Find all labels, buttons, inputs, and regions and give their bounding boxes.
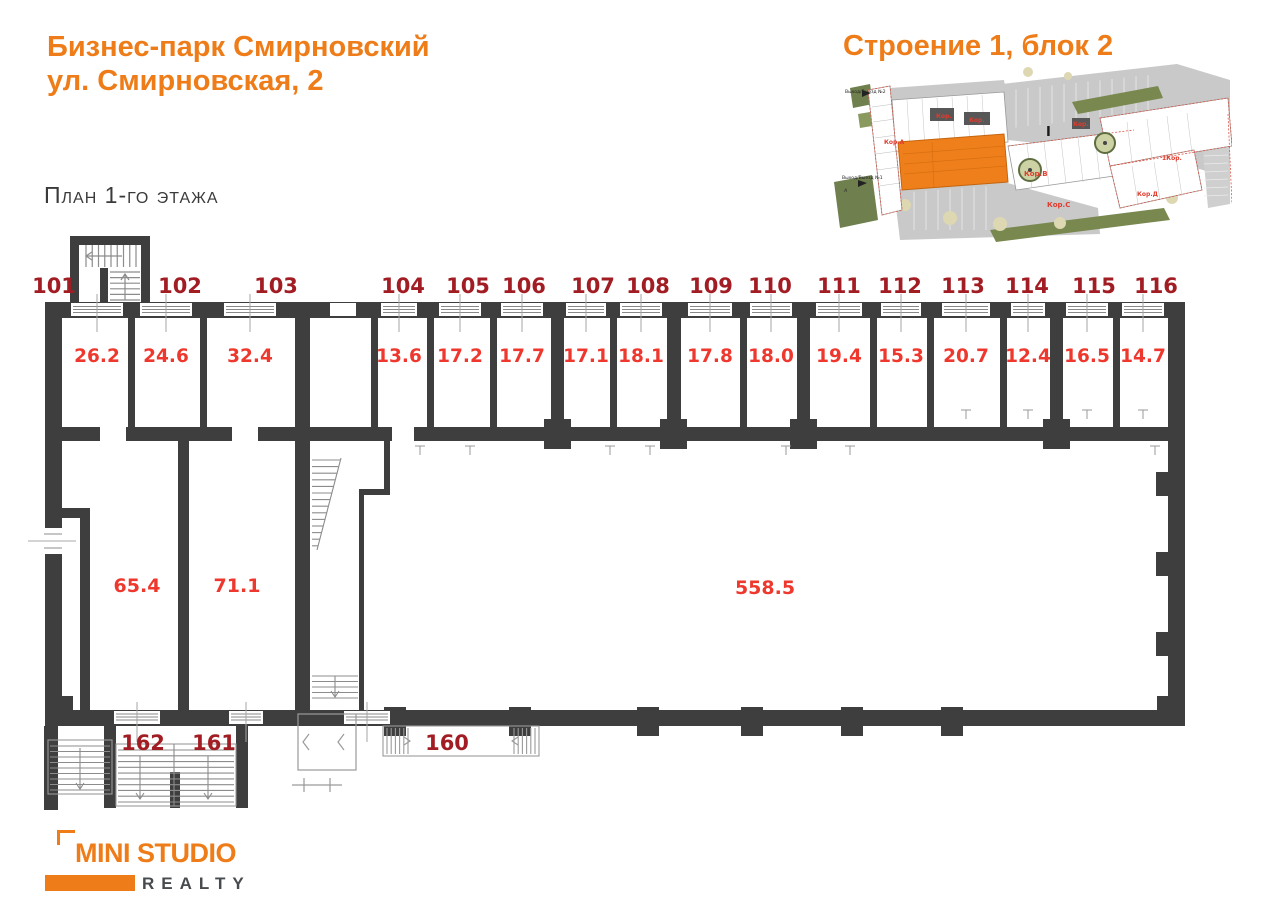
wall-openings xyxy=(40,246,414,554)
room-number: 115 xyxy=(1072,274,1116,298)
room-number: 111 xyxy=(817,274,861,298)
corridor-pier xyxy=(544,419,571,449)
room-number: 101 xyxy=(32,274,76,298)
room-area: 19.4 xyxy=(816,346,862,367)
room-area: 18.0 xyxy=(748,346,794,367)
room-divider-wall xyxy=(870,318,877,427)
room-area: 16.5 xyxy=(1064,346,1110,367)
room-number: 114 xyxy=(1005,274,1049,298)
room-divider-wall xyxy=(200,318,207,427)
stair-hall-upper xyxy=(312,458,341,550)
room-number: 102 xyxy=(158,274,202,298)
room-area: 26.2 xyxy=(74,346,120,367)
room-number: 113 xyxy=(941,274,985,298)
room-divider-wall xyxy=(371,318,378,427)
hall-area-left: 65.4 xyxy=(114,575,161,597)
room-area: 14.7 xyxy=(1120,346,1166,367)
entrance-162: 162 xyxy=(121,731,165,755)
room-area: 12.4 xyxy=(1005,346,1051,367)
room-divider-wall xyxy=(610,318,617,427)
room-number: 107 xyxy=(571,274,615,298)
facade-pier xyxy=(637,707,659,736)
hall-area-middle: 71.1 xyxy=(214,575,261,597)
room-divider-wall xyxy=(927,318,934,427)
room-area: 20.7 xyxy=(943,346,989,367)
room-number: 103 xyxy=(254,274,298,298)
entrance-labels: 162 161 160 xyxy=(121,731,469,755)
room-area: 18.1 xyxy=(618,346,664,367)
room-divider-wall xyxy=(295,318,310,427)
room-divider-wall xyxy=(1000,318,1007,427)
room-area: 15.3 xyxy=(878,346,924,367)
facade-pier xyxy=(841,707,863,736)
room-area: 24.6 xyxy=(143,346,189,367)
room-divider-wall xyxy=(740,318,747,427)
room-area: 17.1 xyxy=(563,346,609,367)
facade-pier xyxy=(741,707,763,736)
room-area: 17.2 xyxy=(437,346,483,367)
room-number: 110 xyxy=(748,274,792,298)
logo-realty: REALTY xyxy=(142,874,251,894)
right-wall-pier xyxy=(1156,472,1168,496)
room-divider-wall xyxy=(1050,318,1063,427)
room-number: 112 xyxy=(878,274,922,298)
entrance-161: 161 xyxy=(192,731,236,755)
logo-name: MINI STUDIO xyxy=(75,838,236,869)
room-divider-wall xyxy=(427,318,434,427)
corridor-pier xyxy=(660,419,687,449)
entrance-160: 160 xyxy=(425,731,469,755)
room-number: 108 xyxy=(626,274,670,298)
logo-bracket-icon xyxy=(57,830,75,845)
right-wall-pier xyxy=(1156,632,1168,656)
room-divider-wall xyxy=(797,318,810,427)
room-number-labels: 101 102 103 104 105 106 107 108 109 110 … xyxy=(32,274,1178,298)
facade-pier xyxy=(509,707,531,736)
room-divider-wall xyxy=(1113,318,1120,427)
hall-area-labels: 65.4 71.1 558.5 xyxy=(114,575,796,599)
room-divider-wall xyxy=(551,318,564,427)
room-number: 105 xyxy=(446,274,490,298)
room-area: 32.4 xyxy=(227,346,273,367)
room-divider-wall xyxy=(490,318,497,427)
floor-plan: 101 102 103 104 105 106 107 108 109 110 … xyxy=(0,0,1280,914)
corridor-pier xyxy=(790,419,817,449)
room-number: 109 xyxy=(689,274,733,298)
logo-bar xyxy=(45,875,135,891)
room-number: 106 xyxy=(502,274,546,298)
room-divider-wall xyxy=(128,318,135,427)
right-wall-pier xyxy=(1156,552,1168,576)
room-area: 17.8 xyxy=(687,346,733,367)
room-number: 116 xyxy=(1134,274,1178,298)
facade-pier xyxy=(941,707,963,736)
flyer-page: Бизнес-парк Смирновский ул. Смирновская,… xyxy=(0,0,1280,914)
room-divider-wall xyxy=(667,318,681,427)
hall-area-main: 558.5 xyxy=(735,577,795,599)
stair-hall-lower xyxy=(312,676,358,698)
room-area: 13.6 xyxy=(376,346,422,367)
corridor-pier xyxy=(1043,419,1070,449)
room-area: 17.7 xyxy=(499,346,545,367)
room-number: 104 xyxy=(381,274,425,298)
